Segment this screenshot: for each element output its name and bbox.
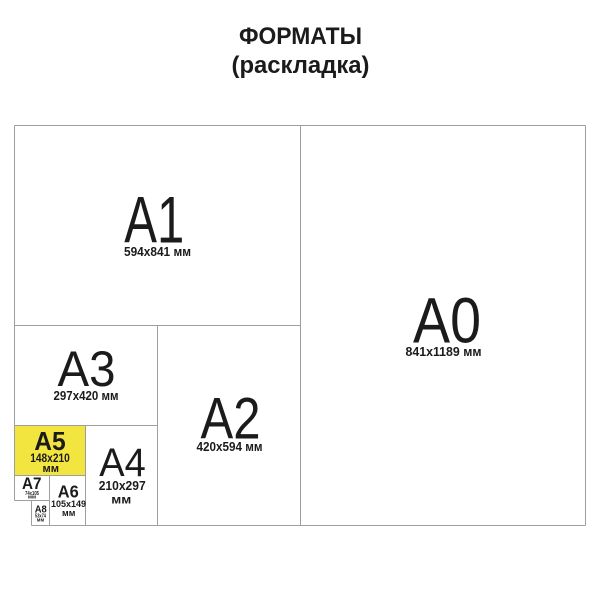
svg-text:841x1189 мм: 841x1189 мм [406, 344, 482, 359]
svg-text:(раскладка): (раскладка) [232, 52, 370, 79]
svg-text:мм: мм [111, 495, 131, 507]
svg-text:мм: мм [43, 463, 60, 475]
svg-text:мм: мм [62, 508, 76, 518]
svg-text:A5: A5 [34, 426, 66, 456]
svg-text:297x420 мм: 297x420 мм [54, 388, 119, 403]
svg-text:210x297: 210x297 [99, 478, 146, 493]
svg-text:мм: мм [28, 494, 36, 500]
svg-text:ФОРМАТЫ: ФОРМАТЫ [239, 23, 362, 50]
svg-text:мм: мм [37, 518, 45, 524]
svg-text:420x594 мм: 420x594 мм [197, 439, 263, 454]
svg-text:594x841 мм: 594x841 мм [124, 244, 191, 259]
